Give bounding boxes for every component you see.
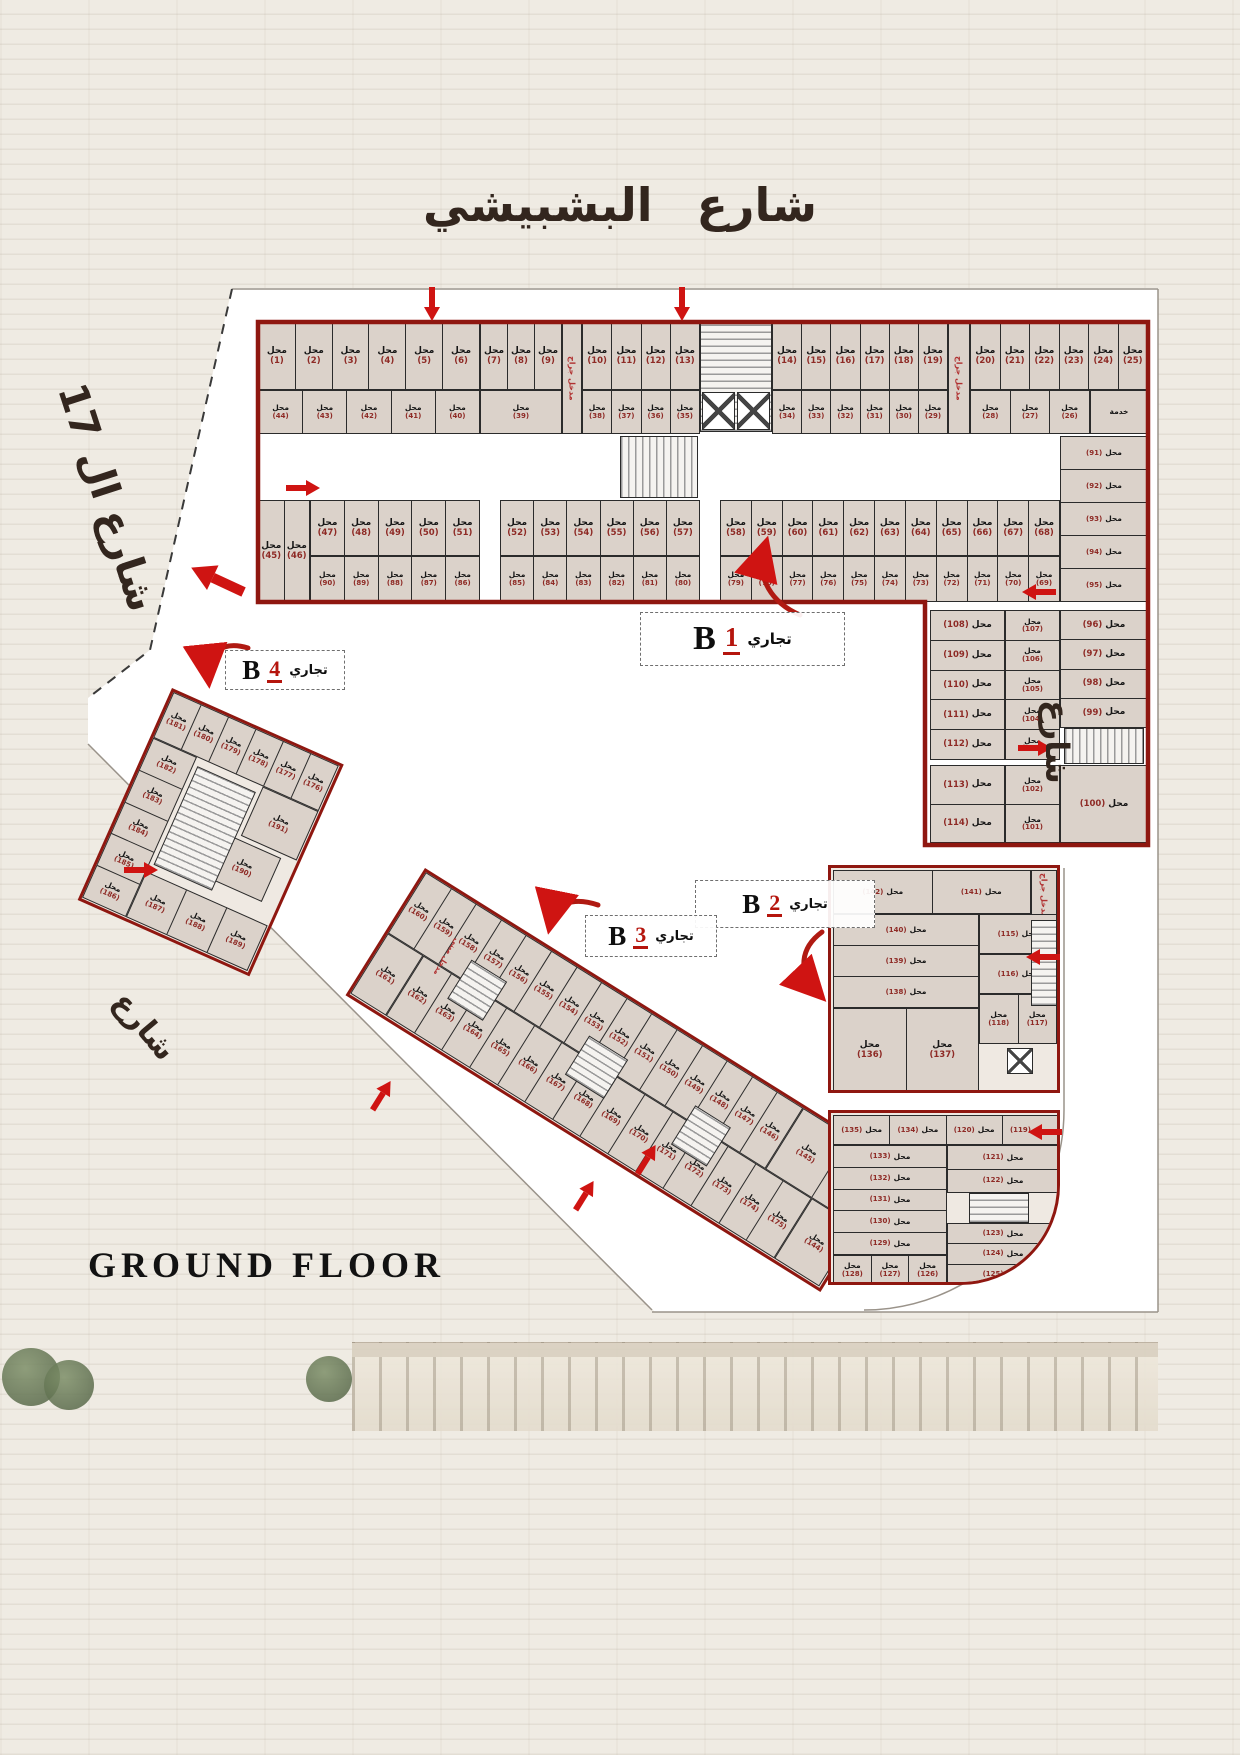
shop-word: محل [943,571,960,579]
shop-word: محل [454,571,471,579]
shop-word: محل [1105,650,1125,659]
shop-number: (52) [507,529,527,538]
shop-word: محل [420,571,437,579]
shop-word: محل [851,571,868,579]
shop-unit-41: محل(41) [391,391,435,433]
shop-word: محل [589,404,606,412]
label-b2-type: تجاري [789,898,828,911]
shop-unit-134: محل(134) [889,1116,945,1144]
shop-number: (40) [449,413,465,420]
shop-unit-127: محل(127) [871,1256,909,1284]
shop-word: محل [1003,519,1023,528]
shop-word: محل [675,571,692,579]
b2-lower-bottom-row: محل(128)محل(127)محل(126) [833,1255,947,1285]
shop-unit-28: محل(28) [971,391,1010,433]
shop-number: (57) [673,529,693,538]
shop-number: (129) [870,1240,891,1247]
shop-unit-62: محل(62) [843,501,874,555]
shop-word: محل [677,404,694,412]
label-b3-letter: B [608,923,626,950]
shop-number: (95) [1086,582,1102,589]
shop-unit-49: محل(49) [378,501,412,555]
shop-word: محل [646,347,666,356]
shop-word: محل [538,347,558,356]
shop-unit-81: محل(81) [633,557,666,601]
shop-word: محل [1093,347,1113,356]
shop-number: (94) [1086,549,1102,556]
tree-thumbnail [306,1356,352,1402]
shop-unit-6: محل(6) [442,323,479,389]
shop-unit-97: محل(97) [1061,639,1147,668]
shop-number: (10) [587,357,607,366]
shop-unit-95: محل(95) [1061,568,1147,601]
shop-word: محل [641,571,658,579]
b2-upper-bottom-row: محل(136)محل(137) [833,1008,979,1092]
shop-word: محل [272,404,289,412]
shop-unit-98: محل(98) [1061,669,1147,698]
shop-word: محل [1123,347,1143,356]
shop-word: محل [835,347,855,356]
shop-unit-18: محل(18) [889,323,918,389]
shop-unit-11: محل(11) [611,323,640,389]
label-b4: B 4 تجاري [225,650,345,690]
shop-number: (117) [1027,1020,1048,1027]
shop-unit-42: محل(42) [346,391,390,433]
shop-unit-19: محل(19) [918,323,947,389]
shop-word: محل [911,519,931,528]
shop-number: (113) [943,781,969,790]
shop-unit-7: محل(7) [481,323,507,389]
shop-number: (48) [351,529,371,538]
shop-number: (138) [886,989,907,996]
shop-number: (3) [344,357,358,366]
shop-number: (41) [405,413,421,420]
b1-row-d-group-3: محل(79)محل(78)محل(77)محل(76)محل(75)محل(7… [720,556,1060,602]
shop-word: محل [894,1153,911,1161]
shop-number: (51) [453,529,473,538]
shop-unit-61: محل(61) [812,501,843,555]
shop-word: محل [757,519,777,528]
shop-number: (74) [882,580,898,587]
shop-number: (99) [1083,709,1103,718]
shop-number: (89) [353,580,369,587]
shop-unit-78: محل(78) [751,557,782,601]
label-b1: B 1 تجاري [640,612,845,666]
shop-unit-39: محل(39) [481,391,561,433]
shop-unit-122: محل(122) [948,1169,1058,1193]
shop-number: (70) [1005,580,1021,587]
shop-unit-37: محل(37) [611,391,640,433]
garage-entrance-strip-1: مدخل جراج [562,322,582,434]
shop-word: محل [387,571,404,579]
b2-garage-entrance-strip: مدخل جراج [1031,870,1057,920]
shop-word: محل [886,888,903,896]
shop-unit-113: محل(113) [931,766,1004,804]
shop-word: محل [1105,581,1122,589]
b2-lower-left-rows: محل(133)محل(132)محل(131)محل(130)محل(129) [833,1145,947,1255]
shop-number: (114) [943,819,969,828]
shop-unit-26: محل(26) [1049,391,1089,433]
shop-word: محل [618,404,635,412]
elevator-b1-top-1 [702,392,735,430]
shop-unit-17: محل(17) [860,323,889,389]
shop-number: (134) [897,1127,918,1134]
shop-word: محل [1007,1271,1024,1279]
shop-unit-58: محل(58) [721,501,751,555]
shop-number: (121) [983,1154,1004,1161]
shop-unit-56: محل(56) [633,501,666,555]
shop-number: (85) [509,580,525,587]
shop-number: (81) [642,580,658,587]
shop-unit-63: محل(63) [874,501,905,555]
shop-unit-82: محل(82) [600,557,633,601]
shop-word: محل [894,1240,911,1248]
shop-unit-87: محل(87) [411,557,445,601]
shop-unit-10: محل(10) [583,323,611,389]
b1-row-c-group-1: محل(47)محل(48)محل(49)محل(50)محل(51) [310,500,480,556]
shop-word: محل [844,1262,861,1270]
shop-unit-141: محل(141) [932,871,1031,913]
shop-number: (4) [381,357,395,366]
shop-word: محل [882,571,899,579]
label-b2: B 2 تجاري [695,880,875,928]
elevator-b2 [1007,1048,1033,1074]
shop-word: محل [982,404,999,412]
shop-number: (141) [961,889,982,896]
shop-number: (130) [870,1218,891,1225]
shop-number: (137) [929,1051,955,1060]
shop-number: (106) [1022,656,1043,663]
shop-word: محل [925,404,942,412]
shop-unit-119: محل(119) [1002,1116,1058,1144]
shop-number: (27) [1022,413,1038,420]
shop-unit-64: محل(64) [905,501,936,555]
shop-word: محل [894,1218,911,1226]
shop-word: محل [573,519,593,528]
shop-word: محل [507,519,527,528]
shop-unit-20: محل(20) [971,323,1000,389]
shop-unit-66: محل(66) [967,501,998,555]
shop-unit-46: محل(46) [284,501,310,601]
shop-unit-109: محل(109) [931,640,1004,670]
shop-number: (125) [983,1271,1004,1278]
b1-row-a-group-4: محل(14)محل(15)محل(16)محل(17)محل(18)محل(1… [772,322,948,390]
b1-wing-left-lower: محل(113)محل(114) [930,765,1005,843]
shop-word: محل [789,571,806,579]
shop-unit-35: محل(35) [670,391,699,433]
shop-number: (69) [1036,580,1052,587]
shop-number: (128) [842,1271,863,1278]
shop-word: محل [419,519,439,528]
shop-word: محل [1024,647,1041,655]
shop-unit-137: محل(137) [906,1009,979,1091]
b1-side-column-91-95: محل(91)محل(92)محل(93)محل(94)محل(95) [1060,436,1148,602]
shop-number: (55) [607,529,627,538]
b1-row-a-group-3: محل(10)محل(11)محل(12)محل(13) [582,322,700,390]
shop-word: محل [1007,1250,1024,1258]
shop-unit-138: محل(138) [834,976,978,1007]
shop-unit-68: محل(68) [1028,501,1059,555]
shop-number: (29) [925,413,941,420]
shop-unit-32: محل(32) [830,391,859,433]
shop-word: محل [341,347,361,356]
shop-number: (5) [417,357,431,366]
shop-unit-90: محل(90) [311,557,344,601]
b2-lower-top-row: محل(135)محل(134)محل(120)محل(119) [833,1115,1059,1145]
floor-plan-page: { "streets": { "top": "شارع البشبيشي", "… [0,0,1240,1755]
shop-number: (119) [1010,1127,1031,1134]
shop-word: محل [912,571,929,579]
shop-number: (56) [640,529,660,538]
shop-unit-96: محل(96) [1061,611,1147,639]
shop-number: (120) [954,1127,975,1134]
shop-unit-60: محل(60) [782,501,813,555]
shop-number: (77) [789,580,805,587]
shop-number: (83) [575,580,591,587]
shop-word: محل [972,710,992,719]
shop-unit-92: محل(92) [1061,469,1147,502]
shop-unit-52: محل(52) [501,501,533,555]
shop-word: محل [1105,515,1122,523]
shop-unit-101: محل(101) [1006,804,1059,843]
shop-word: محل [972,680,992,689]
tree-thumbnail [44,1360,94,1410]
b1-row-b-group-5: محل(28)محل(27)محل(26) [970,390,1090,434]
shop-unit-69: محل(69) [1028,557,1059,601]
shop-unit-24: محل(24) [1088,323,1118,389]
shop-number: (21) [1005,357,1025,366]
shop-unit-31: محل(31) [860,391,889,433]
shop-number: (91) [1086,450,1102,457]
shop-unit-55: محل(55) [600,501,633,555]
stair-core-b1-wing [1064,728,1144,764]
shop-word: محل [972,519,992,528]
shop-unit-12: محل(12) [641,323,670,389]
shop-word: محل [972,651,992,660]
shop-number: (98) [1083,679,1103,688]
shop-word: محل [1105,679,1125,688]
shop-number: (2) [307,357,321,366]
shop-word: محل [1034,519,1054,528]
shop-word: محل [972,621,992,630]
b2-lower-right-a: محل(121)محل(122) [947,1145,1059,1193]
shop-number: (80) [675,580,691,587]
shop-unit-79: محل(79) [721,557,751,601]
garage-entrance-text: مدخل جراج [568,356,577,401]
shop-number: (34) [779,413,795,420]
shop-unit-45: محل(45) [259,501,284,601]
shop-number: (78) [759,580,775,587]
label-b1-type: تجاري [747,632,791,647]
shop-unit-5: محل(5) [405,323,442,389]
shop-number: (39) [513,413,529,420]
shop-unit-71: محل(71) [967,557,998,601]
shop-word: محل [351,519,371,528]
shop-unit-125: محل(125) [948,1264,1058,1284]
shop-unit-48: محل(48) [344,501,378,555]
shop-unit-2: محل(2) [295,323,332,389]
shop-unit-132: محل(132) [834,1167,946,1189]
shop-unit-139: محل(139) [834,945,978,976]
shop-word: محل [808,404,825,412]
label-b4-letter: B [242,657,260,684]
shop-number: (49) [385,529,405,538]
shop-word: محل [880,519,900,528]
b1-wing-left-column: محل(108)محل(109)محل(110)محل(111)محل(112) [930,610,1005,760]
shop-unit-34: محل(34) [773,391,801,433]
shop-unit-40: محل(40) [435,391,479,433]
shop-word: محل [640,519,660,528]
shop-word: محل [894,1174,911,1182]
shop-word: محل [865,347,885,356]
service-room-cell: خدمة [1091,391,1147,433]
shop-unit-65: محل(65) [936,501,967,555]
floor-title: GROUND FLOOR [88,1244,445,1286]
shop-word: محل [860,1041,880,1050]
shop-unit-124: محل(124) [948,1243,1058,1263]
shop-number: (24) [1093,357,1113,366]
shop-number: (53) [540,529,560,538]
shop-word: محل [1105,548,1122,556]
shop-word: محل [910,926,927,934]
shop-number: (136) [857,1051,883,1060]
shop-number: (22) [1034,357,1054,366]
shop-number: (18) [894,357,914,366]
shop-unit-33: محل(33) [801,391,830,433]
shop-word: محل [806,347,826,356]
shop-unit-128: محل(128) [834,1256,871,1284]
shop-word: محل [910,988,927,996]
shop-word: محل [1024,816,1041,824]
shop-number: (112) [943,740,969,749]
shop-word: محل [726,519,746,528]
shop-word: محل [587,347,607,356]
shop-number: (28) [982,413,998,420]
shop-word: محل [509,571,526,579]
shop-word: محل [1022,404,1039,412]
shop-number: (64) [911,529,931,538]
elevation-thumbnail [352,1342,1158,1431]
shop-unit-76: محل(76) [812,557,843,601]
shop-number: (135) [841,1127,862,1134]
shop-word: محل [923,347,943,356]
shop-unit-23: محل(23) [1059,323,1089,389]
shop-number: (42) [361,413,377,420]
shop-word: محل [942,519,962,528]
shop-number: (75) [851,580,867,587]
shop-word: محل [511,347,531,356]
shop-word: محل [385,519,405,528]
label-b3: B 3 تجاري [585,915,717,957]
stair-core-b2-upper [1031,920,1057,1006]
shop-number: (133) [870,1153,891,1160]
shop-word: محل [317,519,337,528]
shop-word: محل [849,519,869,528]
shop-unit-86: محل(86) [445,557,479,601]
shop-unit-73: محل(73) [905,557,936,601]
shop-unit-130: محل(130) [834,1210,946,1232]
service-room-label: خدمة [1110,408,1129,416]
shop-word: محل [453,519,473,528]
shop-word: محل [882,1262,899,1270]
shop-number: (122) [983,1177,1004,1184]
shop-word: محل [894,347,914,356]
shop-unit-136: محل(136) [834,1009,906,1091]
shop-unit-111: محل(111) [931,699,1004,729]
shop-number: (67) [1003,529,1023,538]
shop-number: (50) [419,529,439,538]
shop-number: (13) [675,357,695,366]
shop-number: (63) [880,529,900,538]
shop-number: (45) [261,552,281,561]
shop-word: محل [1007,1177,1024,1185]
shop-number: (54) [574,529,594,538]
shop-unit-53: محل(53) [533,501,566,555]
shop-number: (115) [998,931,1019,938]
shop-word: محل [542,571,559,579]
shop-number: (76) [820,580,836,587]
shop-word: محل [975,347,995,356]
garage-entrance-text: مدخل جراج [1040,873,1049,918]
label-b2-letter: B [742,891,760,918]
shop-word: محل [647,404,664,412]
b1-row-c-group-0: محل(45)محل(46) [258,500,310,602]
shop-unit-88: محل(88) [378,557,412,601]
shop-word: محل [287,542,307,551]
shop-unit-13: محل(13) [670,323,699,389]
shop-word: محل [1005,347,1025,356]
label-b1-number: 1 [723,623,741,654]
shop-number: (36) [648,413,664,420]
shop-unit-29: محل(29) [918,391,947,433]
shop-word: محل [353,571,370,579]
shop-unit-93: محل(93) [1061,502,1147,535]
shop-number: (105) [1022,686,1043,693]
building-b4: محل(181)محل(180)محل(179)محل(178)محل(177)… [78,688,344,976]
shop-word: محل [922,1126,939,1134]
shop-unit-126: محل(126) [908,1256,946,1284]
shop-word: محل [361,404,378,412]
b1-row-c-group-3: محل(58)محل(59)محل(60)محل(61)محل(62)محل(6… [720,500,1060,556]
stair-core-b2-lower [969,1193,1029,1223]
shop-unit-67: محل(67) [997,501,1028,555]
shop-unit-3: محل(3) [332,323,369,389]
b1-row-d-group-1: محل(90)محل(89)محل(88)محل(87)محل(86) [310,556,480,602]
shop-number: (62) [849,529,869,538]
shop-unit-14: محل(14) [773,323,801,389]
shop-word: محل [267,347,287,356]
shop-unit-75: محل(75) [843,557,874,601]
shop-unit-129: محل(129) [834,1232,946,1254]
shop-word: محل [777,347,797,356]
shop-number: (93) [1086,516,1102,523]
shop-word: محل [837,404,854,412]
shop-word: محل [895,404,912,412]
b1-row-a-group-5: محل(20)محل(21)محل(22)محل(23)محل(24)محل(2… [970,322,1148,390]
shop-word: محل [1024,677,1041,685]
shop-word: محل [319,571,336,579]
shop-unit-85: محل(85) [501,557,533,601]
shop-word: محل [540,519,560,528]
b2-upper-rows: محل(140)محل(139)محل(138) [833,914,979,1008]
shop-word: محل [1034,1126,1051,1134]
b1-row-b-group-2: محل(39) [480,390,562,434]
shop-word: محل [513,404,530,412]
shop-word: محل [1029,1011,1046,1019]
shop-unit-59: محل(59) [751,501,782,555]
shop-number: (32) [837,413,853,420]
shop-word: محل [985,888,1002,896]
